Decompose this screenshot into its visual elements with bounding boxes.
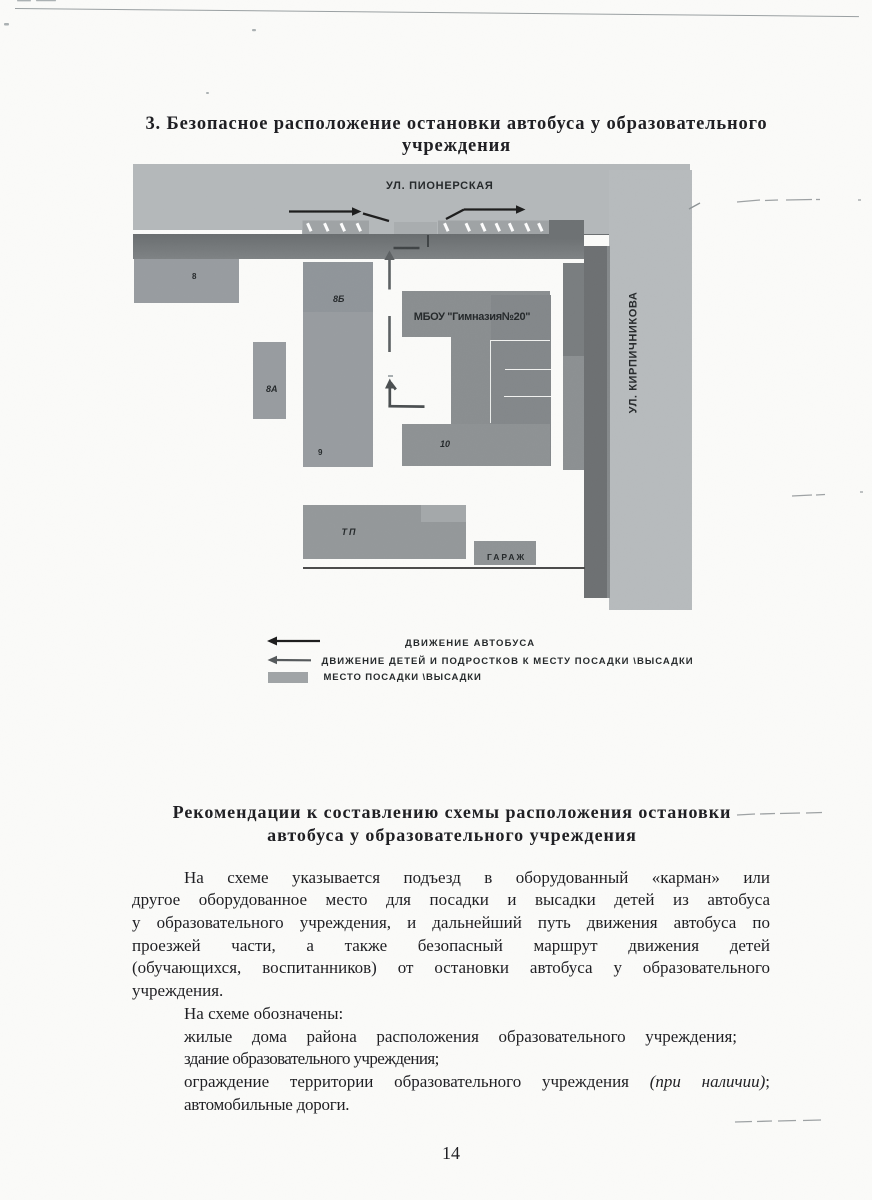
svg-text:УЛ. КИРПИЧНИКОВА: УЛ. КИРПИЧНИКОВА: [628, 292, 640, 414]
